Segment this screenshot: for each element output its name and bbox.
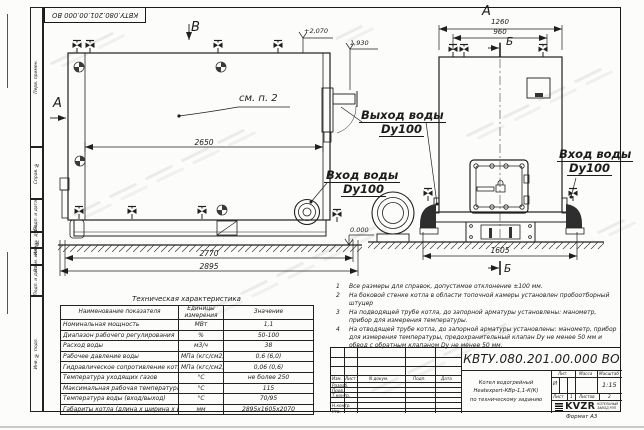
col-header: Наименование показателя — [61, 306, 179, 320]
kvzr-logo-icon — [555, 403, 563, 411]
cell: МПа (кгс/см2) — [179, 362, 224, 373]
center-mark-icon — [74, 62, 84, 72]
cell: не более 250 — [224, 372, 314, 383]
notes-list: 1Все размеры для справок, допустимое отк… — [334, 283, 618, 351]
note-text: Все размеры для справок, допустимое откл… — [349, 283, 618, 291]
format-label: Формат А3 — [566, 414, 597, 420]
outlet-water-dn: Dy100 — [379, 123, 424, 137]
drain-tap-icon — [128, 207, 137, 220]
cell: Температура воды (вход/выход) — [61, 394, 179, 405]
cell: м3/ч — [179, 341, 224, 352]
valve-icon — [539, 45, 548, 58]
tb-header-ndok: N докум. — [369, 376, 388, 381]
view-title-a: А — [482, 4, 491, 19]
valve-icon — [73, 41, 82, 54]
tb-role: Н.контр. — [332, 403, 351, 408]
tb-sheet-label: Лист — [553, 394, 564, 399]
dim-2770: 2770 — [179, 249, 239, 258]
dim-2895: 2895 — [179, 262, 239, 271]
doc-name-line: Heatexpert-КВр-1,1-К(К) — [473, 387, 538, 395]
tb-header-list: Лист — [345, 376, 356, 381]
tech-table-title: Техническая характеристика — [60, 295, 313, 303]
title-block: Изм. Лист N докум. Подп. Дата Разраб. Пр… — [330, 347, 621, 412]
drawing-sheet: Перв. примен. Справ. № Подп. и дата Инв.… — [0, 0, 644, 430]
doc-name-line: по техническому заданию — [470, 396, 542, 404]
tech-characteristics: Техническая характеристика Наименование … — [60, 295, 313, 415]
col-header: Единицы измерения — [179, 306, 224, 320]
cell: 0,06 (0,6) — [224, 362, 314, 373]
note-item: 1Все размеры для справок, допустимое отк… — [334, 283, 618, 291]
table-row: Максимальная рабочая температура воды°С1… — [61, 383, 314, 394]
table-row: Гидравлическое сопротивление котлаМПа (к… — [61, 362, 314, 373]
dim-1605: 1605 — [470, 246, 530, 255]
cell: 1,1 — [224, 320, 314, 331]
center-mark-icon — [217, 205, 227, 215]
tb-sheets-value: 2 — [608, 394, 611, 399]
note-number: 2 — [334, 292, 349, 308]
valve-icon — [460, 45, 469, 58]
center-mark-icon — [75, 156, 85, 166]
tb-header-izm: Изм. — [332, 376, 342, 381]
dim-960: 960 — [483, 28, 517, 36]
cell: Гидравлическое сопротивление котла — [61, 362, 179, 373]
section-label-b-top: Б — [506, 36, 513, 48]
cell: Габариты котла (длина х ширина х высота) — [61, 404, 179, 415]
center-mark-icon — [216, 62, 226, 72]
table-row: Температура уходящих газов°Сне более 250 — [61, 372, 314, 383]
cell: Расход воды — [61, 341, 179, 352]
cell: мм — [179, 404, 224, 415]
cell: °С — [179, 394, 224, 405]
cell: Номинальная мощность — [61, 320, 179, 331]
col-header: Значение — [224, 306, 314, 320]
cell: 38 — [224, 341, 314, 352]
note-item: 3На подводящей трубе котла, до запорной … — [334, 309, 618, 325]
cell: Диапазон рабочего регулирования — [61, 330, 179, 341]
view-arrow-label-a: А — [53, 96, 62, 111]
cell: Рабочее давление воды — [61, 351, 179, 362]
cell: 70/95 — [224, 394, 314, 405]
inlet-water-dn-front: Dy100 — [341, 183, 386, 197]
valve-icon — [274, 41, 283, 54]
callout-see-note: см. п. 2 — [239, 93, 278, 104]
tb-lit-value: И — [553, 381, 557, 387]
tech-table: Наименование показателя Единицы измерени… — [60, 305, 314, 415]
cell: Температура уходящих газов — [61, 372, 179, 383]
section-label-b-bottom: Б — [504, 263, 511, 275]
table-row: Расход водым3/ч38 — [61, 341, 314, 352]
table-row: Номинальная мощностьМВт1,1 — [61, 320, 314, 331]
doc-name-line: Котел водогрейный — [479, 379, 533, 387]
cell: °С — [179, 383, 224, 394]
tb-sheets-label: Листов — [579, 394, 595, 399]
cell: °С — [179, 372, 224, 383]
valve-icon — [424, 189, 433, 202]
table-row: Диапазон рабочего регулирования%50-100 — [61, 330, 314, 341]
cell: 2895х1605х2070 — [224, 404, 314, 415]
elevation-mid: 1,930 — [350, 39, 369, 47]
document-name: Котел водогрейный Heatexpert-КВр-1,1-К(К… — [461, 370, 551, 413]
note-item: 2На боковой стенке котла в области топоч… — [334, 292, 618, 308]
tb-scale-label: Масштаб — [599, 371, 619, 376]
cell: МПа (кгс/см2) — [179, 351, 224, 362]
company-logo: KVZR КОТЕЛЬНЫЙ ЗАВОД РЭП — [551, 400, 622, 413]
tb-role: Утв. — [332, 409, 341, 414]
inlet-water-dn-side: Dy100 — [567, 162, 612, 176]
table-header-row: Наименование показателя Единицы измерени… — [61, 306, 314, 320]
table-row: Рабочее давление водыМПа (кгс/см2)0,6 (6… — [61, 351, 314, 362]
drain-tap-icon — [75, 207, 84, 220]
tb-header-podp: Подп. — [413, 376, 426, 381]
valve-icon — [86, 41, 95, 54]
cell: МВт — [179, 320, 224, 331]
tb-scale-value: 1:15 — [602, 381, 617, 389]
note-text: На боковой стенке котла в области топочн… — [349, 292, 618, 308]
tb-header-data: Дата — [441, 376, 452, 381]
company-name: КОТЕЛЬНЫЙ ЗАВОД РЭП — [597, 403, 618, 411]
cell: 0,6 (6,0) — [224, 351, 314, 362]
cell: 115 — [224, 383, 314, 394]
drain-tap-icon — [198, 207, 207, 220]
table-row: Температура воды (вход/выход)°С70/95 — [61, 394, 314, 405]
view-label-b: В — [191, 20, 200, 35]
tb-sheet-value: 1 — [570, 394, 573, 399]
tb-role: Т.контр. — [332, 393, 350, 398]
elevation-zero: 0.000 — [350, 226, 369, 234]
dim-2650: 2650 — [174, 138, 234, 147]
note-number: 3 — [334, 309, 349, 325]
cell: % — [179, 330, 224, 341]
table-row: Габариты котла (длина х ширина х высота)… — [61, 404, 314, 415]
logo-text: KVZR — [565, 401, 595, 412]
dim-1260: 1260 — [480, 18, 520, 26]
cell: Максимальная рабочая температура воды — [61, 383, 179, 394]
elevation-top: +2,070 — [304, 27, 328, 35]
valve-icon — [214, 41, 223, 54]
note-number: 1 — [334, 283, 349, 291]
document-designation: КВТУ.080.201.00.000 ВО — [461, 348, 622, 370]
drain-tap-icon — [333, 210, 342, 223]
note-text: На подводящей трубе котла, до запорной а… — [349, 309, 618, 325]
tb-mass-label: Масса — [579, 371, 592, 376]
tb-lit-label: Лит. — [558, 371, 568, 376]
cell: 50-100 — [224, 330, 314, 341]
